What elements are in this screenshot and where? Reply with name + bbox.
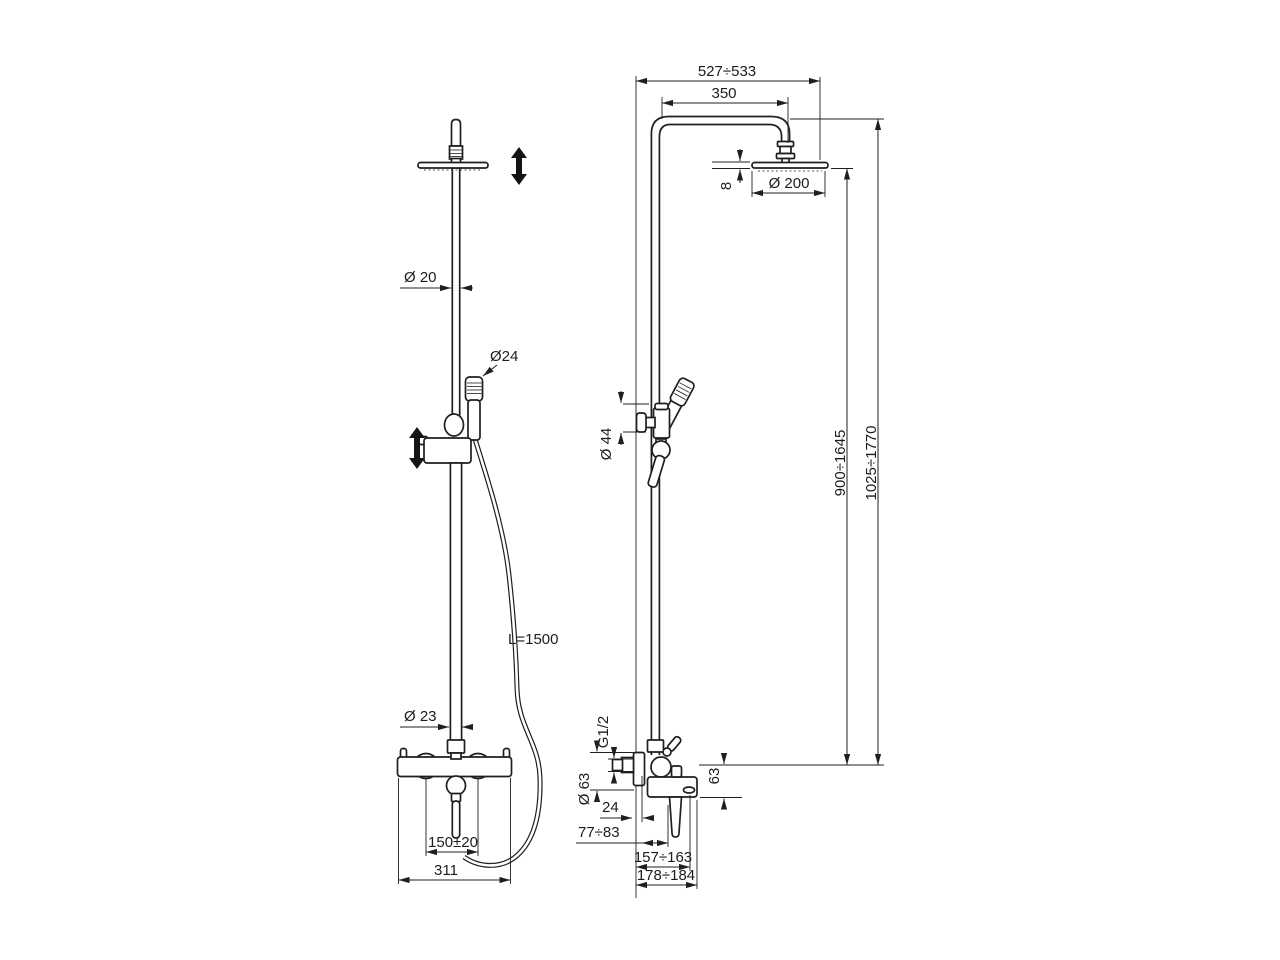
slider-body <box>424 438 471 463</box>
dim-flange-dia: Ø 63 <box>576 773 593 806</box>
dim-upper-pipe-dia: Ø 20 <box>404 269 437 286</box>
mixer-top-coupler <box>648 740 664 752</box>
dim-height-to-head: 900÷1645 <box>832 430 849 497</box>
dim-inlet-spacing: 150±20 <box>428 834 478 851</box>
diverter-knob <box>672 766 682 777</box>
riser-pipe-upper <box>452 168 459 418</box>
height-adjust-arrow-slider <box>409 427 425 469</box>
hand-shower-front <box>466 377 483 440</box>
dim-lever-offset: 77÷83 <box>578 824 620 841</box>
dim-outlet-reach: 157÷163 <box>634 849 692 866</box>
dim-handshower-dia: Ø24 <box>490 348 518 365</box>
mixer-neck <box>451 753 461 759</box>
slider-lever <box>647 455 665 488</box>
column-and-arm <box>651 117 789 756</box>
dim-body-width: 311 <box>434 862 458 879</box>
dim-height-overall: 1025÷1770 <box>863 426 880 501</box>
dim-arm-projection: 350 <box>711 85 736 102</box>
dim-hose-length: L=1500 <box>508 631 558 648</box>
dim-lower-pipe-dia: Ø 23 <box>404 708 437 725</box>
lever-hub <box>663 748 671 756</box>
head-stem-tip <box>452 120 461 147</box>
thread-nut <box>613 760 623 771</box>
shower-column-diagram: Ø 20 Ø24 L=1500 Ø 23 150±20 311 <box>0 0 1280 960</box>
side-view: 527÷533 350 Ø 200 8 900÷1645 1025÷177 <box>576 63 884 898</box>
mixer-body-bar <box>398 757 512 777</box>
slider-lock-knob <box>445 414 464 436</box>
dim-slider-dia: Ø 44 <box>598 428 615 461</box>
mixer-ball-joint <box>447 776 466 795</box>
dim-head-dia: Ø 200 <box>769 175 810 192</box>
shower-hose <box>464 436 540 865</box>
head-stem-ribs <box>450 146 463 159</box>
shower-head-front <box>418 120 488 171</box>
height-adjust-arrow-top <box>511 147 527 185</box>
slider-knob-cap <box>637 413 647 432</box>
head-disc <box>418 163 488 169</box>
dim-body-reach: 178÷184 <box>637 867 695 884</box>
slider-housing <box>654 408 670 438</box>
slider-cap <box>655 404 668 410</box>
wall-flange <box>634 753 645 786</box>
dim-overall-depth: 527÷533 <box>698 63 756 80</box>
mixer-front <box>398 749 512 839</box>
mixer-ball-side <box>651 757 671 777</box>
pipe-coupler <box>448 740 465 753</box>
dim-head-thickness: 8 <box>718 182 735 190</box>
front-view: Ø 20 Ø24 L=1500 Ø 23 150±20 311 <box>398 120 559 885</box>
shower-head-side <box>752 142 828 172</box>
head-disc-side <box>752 163 828 169</box>
hand-shower-handle <box>468 400 480 440</box>
hose-outlet <box>684 787 695 793</box>
technical-drawing: Ø 20 Ø24 L=1500 Ø 23 150±20 311 <box>0 0 1280 960</box>
mixer-side <box>613 735 698 837</box>
slider-bracket-front <box>419 414 472 463</box>
dim-thread-size: G1/2 <box>595 716 612 749</box>
mixer-lever-side <box>670 797 682 837</box>
mixer-lever-front <box>452 801 459 838</box>
dim-wall-offset: 24 <box>602 799 619 816</box>
front-dimensions: Ø 20 Ø24 L=1500 Ø 23 150±20 311 <box>399 269 559 884</box>
riser-pipe-lower <box>450 463 461 741</box>
dim-body-drop: 63 <box>706 768 723 785</box>
